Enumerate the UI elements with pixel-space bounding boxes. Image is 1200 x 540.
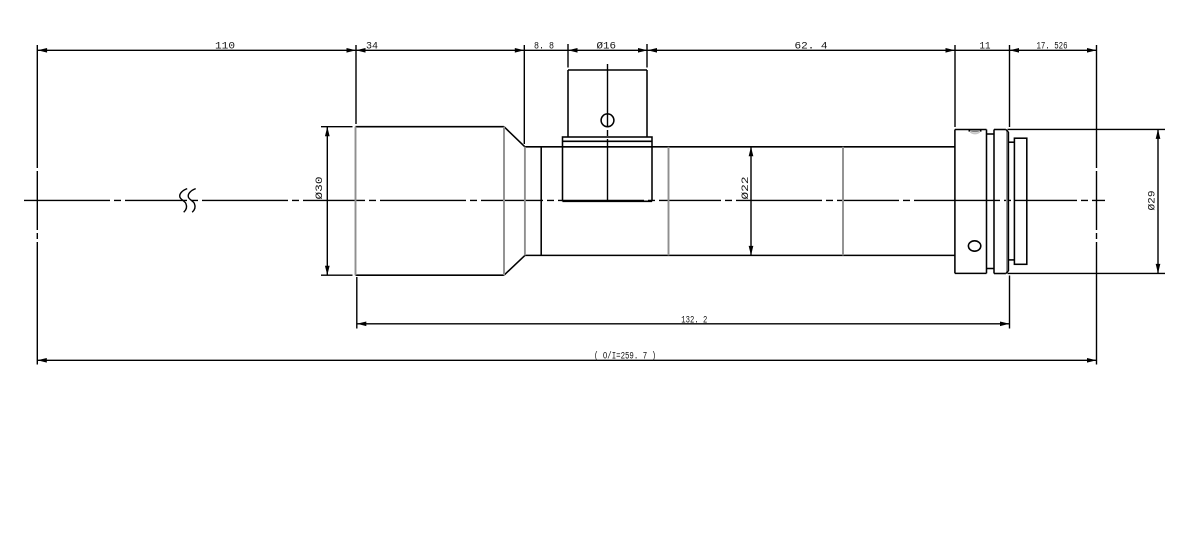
svg-text:62. 4: 62. 4 bbox=[795, 42, 828, 53]
svg-text:11: 11 bbox=[980, 42, 991, 53]
svg-text:Ø29: Ø29 bbox=[1147, 191, 1159, 211]
svg-text:( O/I=259. 7 ): ( O/I=259. 7 ) bbox=[594, 350, 656, 362]
svg-text:110: 110 bbox=[215, 42, 235, 53]
svg-text:Ø22: Ø22 bbox=[740, 177, 752, 200]
svg-text:8. 8: 8. 8 bbox=[534, 42, 554, 53]
svg-text:Ø30: Ø30 bbox=[314, 177, 326, 200]
svg-text:Ø16: Ø16 bbox=[597, 41, 617, 53]
svg-text:34: 34 bbox=[366, 42, 378, 53]
svg-text:17. 526: 17. 526 bbox=[1037, 42, 1068, 53]
svg-text:132. 2: 132. 2 bbox=[681, 315, 707, 326]
